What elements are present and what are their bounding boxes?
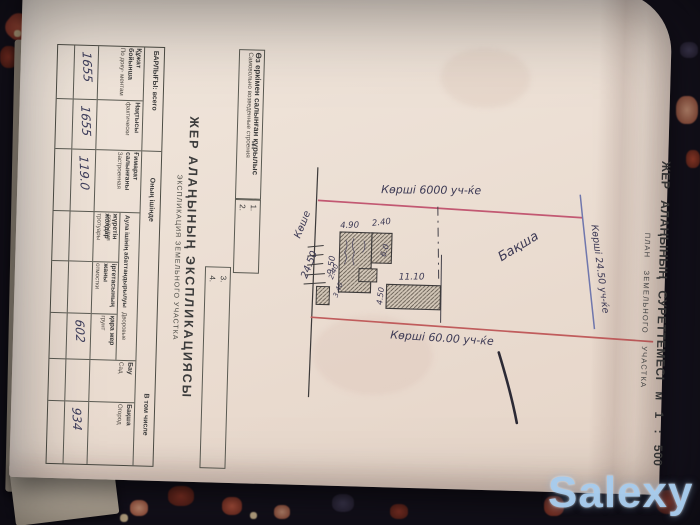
- watermark-logo: Salexy: [548, 468, 693, 518]
- dim-barn-length: 11.10: [399, 272, 425, 282]
- explication-table-block: Өз еркімен салынған құрылыс Самовольно в…: [38, 44, 265, 470]
- col-soil: қара жергрунт: [90, 314, 116, 360]
- col-group-yard-covering: Аула ішінің абаттандырылуы Дворовые покр…: [90, 212, 139, 361]
- col-by-documents: Құжат бойыншаПо доку- ментам: [98, 46, 144, 101]
- outhouse-footprint: [316, 286, 329, 304]
- carpet-motif: [222, 497, 242, 515]
- dim-house-ext-width: 2.40: [371, 217, 391, 229]
- carpet-motif: [130, 500, 148, 516]
- house-footprint: [338, 232, 392, 293]
- col-built-up: Ғимарат салынғаныЗастроенная: [95, 150, 142, 213]
- carpet-motif: [274, 505, 290, 519]
- explication-table: БАРЛЫҒЫ: всего Оның ішінде В том числе Қ…: [45, 44, 165, 467]
- neighbor-bottom-label: Көрші 60.00 уч-ќе: [390, 328, 494, 347]
- paper-stain: [440, 47, 532, 109]
- neighbor-top-label: Көрші 6000 уч-ќе: [381, 183, 481, 197]
- col-blind-area: іргетасының жаныотмостки: [92, 262, 118, 315]
- value-total-docs: 1655: [79, 45, 98, 100]
- carpet-motif: [676, 96, 698, 124]
- col-actual: Нақтысыфактически: [96, 100, 142, 151]
- col-walkways: жүретін жолдартротуары: [93, 212, 119, 263]
- dim-house-width: 4.90: [340, 221, 359, 231]
- carpet-motif: [168, 486, 194, 506]
- street-boundary-line: [308, 167, 317, 397]
- col-garden: БақшаОгород: [88, 402, 135, 465]
- value-garden: 934: [69, 401, 89, 465]
- self-built-slots-1-2: 1. 2.: [233, 199, 261, 274]
- value-built-up: 119.0: [76, 149, 96, 212]
- col-orchard: БауСад: [89, 360, 135, 403]
- pen-stroke: [497, 352, 519, 423]
- garden-label: Бақша: [496, 229, 542, 265]
- document-sheet: ЖЕР АЛАҢЫНЫҢ СУРЕТТЕМЕСІ м 1 : 500 ПЛАН …: [9, 0, 673, 495]
- value-soil: 602: [72, 313, 91, 360]
- street-label: Көше: [292, 209, 313, 240]
- carpet-motif: [680, 42, 698, 58]
- street-width-label: 24.50: [299, 249, 320, 280]
- header-total: БАРЛЫҒЫ: всего: [142, 47, 164, 151]
- carpet-motif: [332, 494, 354, 512]
- carpet-motif: [14, 30, 21, 37]
- dim-barn-width: 4.50: [375, 287, 386, 306]
- plot-top-boundary: [318, 200, 583, 217]
- yard-garden-divider: [436, 207, 441, 283]
- carpet-motif: [390, 504, 408, 519]
- photo-of-land-plan: ЖЕР АЛАҢЫНЫҢ СУРЕТТЕМЕСІ м 1 : 500 ПЛАН …: [0, 0, 700, 525]
- carpet-motif: [250, 512, 257, 519]
- carpet-motif: [120, 514, 128, 522]
- barn-footprint: [386, 284, 441, 309]
- self-built-slots-3-4: 3. 4.: [199, 266, 231, 469]
- value-total-actual: 1655: [78, 99, 97, 150]
- site-plan-drawing: Көрші 6000 уч-ќе Көрші 24.50 уч-ќе Көрші…: [275, 128, 673, 439]
- carpet-motif: [686, 150, 700, 168]
- self-built-label: Өз еркімен салынған құрылыс Самовольно в…: [235, 49, 265, 200]
